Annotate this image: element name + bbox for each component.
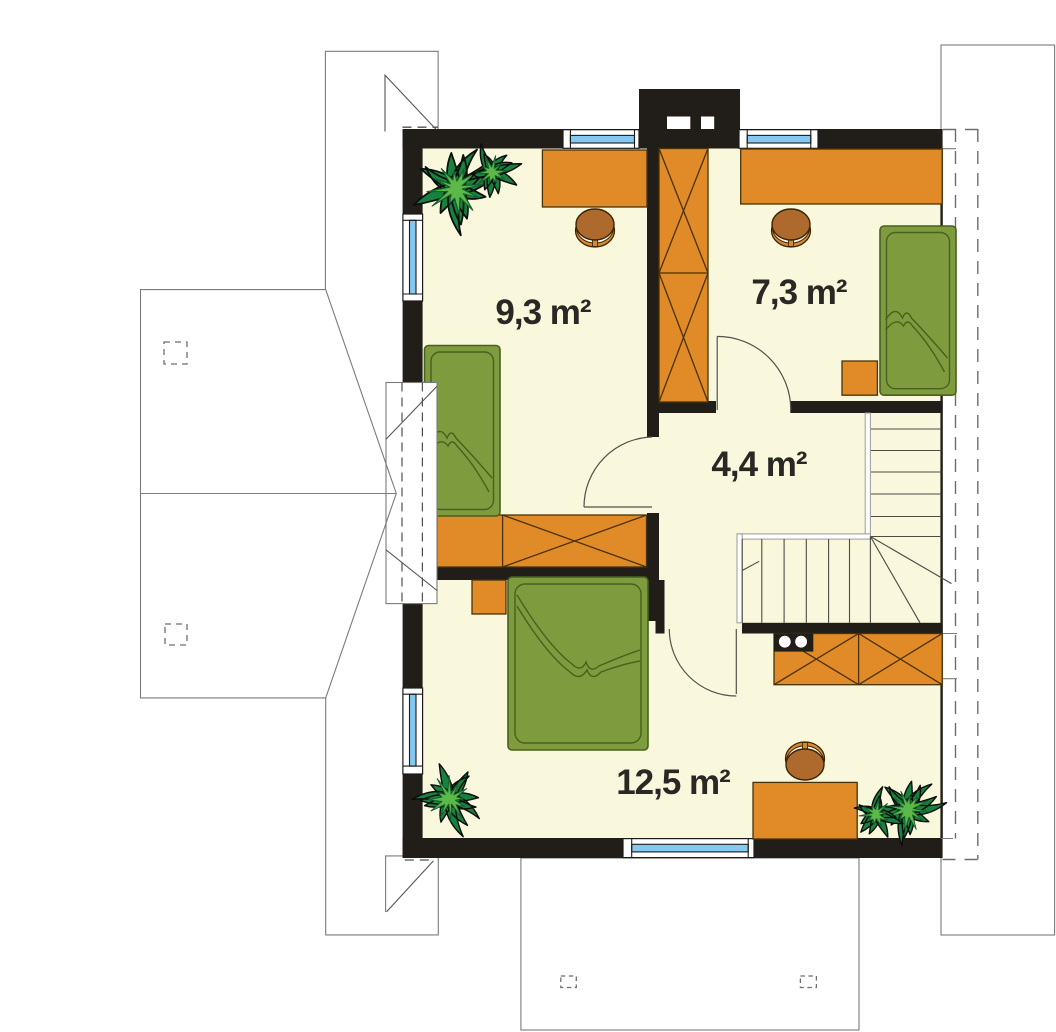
svg-text:12,5 m²: 12,5 m²	[616, 763, 730, 802]
svg-text:7,3 m²: 7,3 m²	[751, 273, 846, 312]
svg-text:9,3 m²: 9,3 m²	[495, 293, 590, 332]
svg-text:4,4 m²: 4,4 m²	[711, 445, 806, 484]
